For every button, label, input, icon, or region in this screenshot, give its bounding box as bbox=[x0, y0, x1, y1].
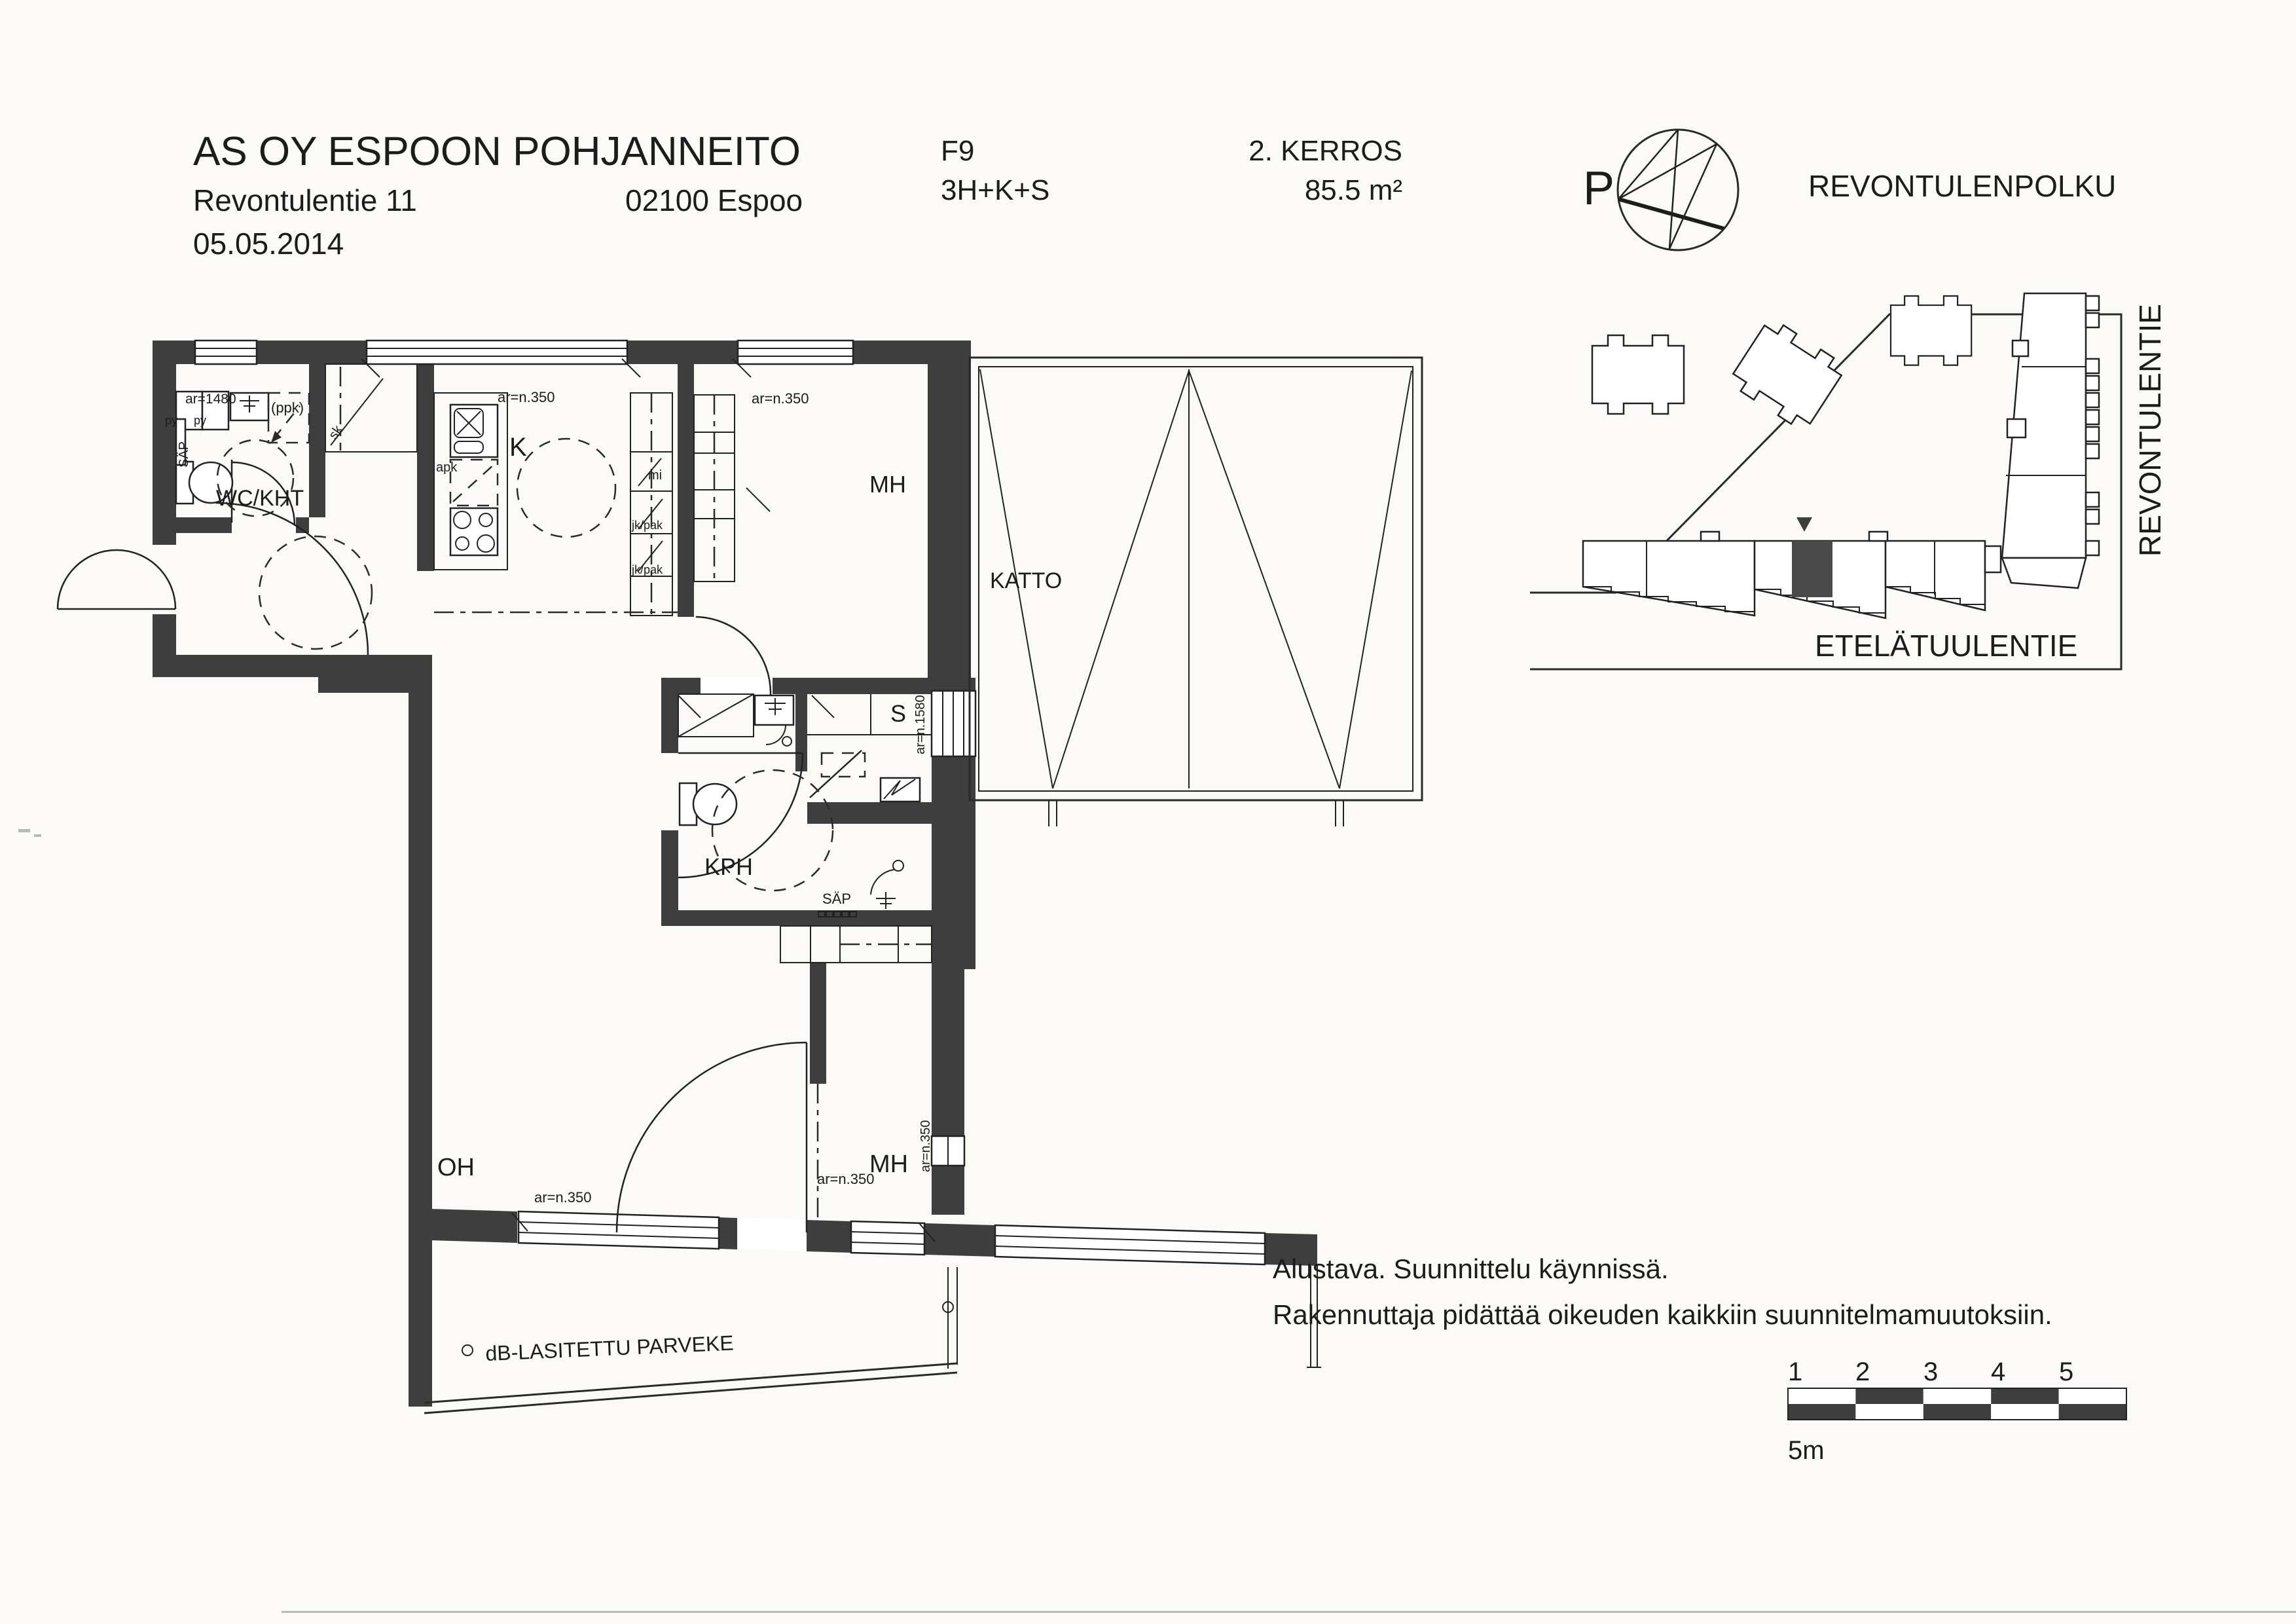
room-label-kitchen: K bbox=[509, 433, 527, 462]
balcony-post-left bbox=[462, 1345, 473, 1356]
scale-unit-label: 5m bbox=[1788, 1436, 1825, 1465]
scan-artifacts bbox=[18, 829, 2296, 1613]
annotation-jk-pak-2: jk/pak bbox=[631, 563, 663, 576]
kitchen-dishwasher-apk bbox=[450, 460, 498, 506]
window-wc bbox=[195, 341, 257, 364]
kitchen-counter bbox=[434, 393, 507, 570]
bedroom-top-wardrobes bbox=[694, 395, 735, 581]
kitchen-stove bbox=[450, 508, 498, 555]
room-label-sauna: S bbox=[890, 700, 906, 727]
note-line-2: Rakennuttaja pidättää oikeuden kaikkiin … bbox=[1273, 1299, 2052, 1330]
sauna-stove bbox=[822, 753, 865, 777]
room-label-living-room: OH bbox=[437, 1154, 475, 1181]
room-label-wc-kht: WC/KHT bbox=[216, 486, 304, 511]
annotation-mi: mi bbox=[648, 468, 662, 483]
apartment-type: 3H+K+S bbox=[941, 174, 1049, 206]
scale-tick-3: 3 bbox=[1923, 1357, 1938, 1386]
window-kitchen bbox=[367, 341, 627, 364]
site-highlighted-unit bbox=[1792, 541, 1832, 597]
room-label-bedroom-bottom: MH bbox=[869, 1151, 908, 1178]
annotation-jk-pak-1: jk/pak bbox=[631, 519, 663, 532]
entry-door bbox=[58, 550, 175, 609]
kitchen-turning-circle bbox=[517, 439, 615, 537]
drawing-canvas: AS OY ESPOON POHJANNEITO Revontulentie 1… bbox=[0, 0, 2296, 1624]
floor-plan: WC/KHT K MH KATTO S KPH OH MH dB-LASITET… bbox=[58, 341, 1422, 1413]
window-living-room bbox=[519, 1211, 719, 1249]
site-building-rotated bbox=[1728, 317, 1848, 433]
scale-bar: 1 2 3 4 5 5m bbox=[1788, 1357, 2126, 1465]
site-unit-marker-triangle bbox=[1796, 517, 1812, 532]
window-bedroom-bottom-east bbox=[932, 1136, 964, 1166]
scale-tick-2: 2 bbox=[1855, 1357, 1870, 1386]
bedroom-top-door bbox=[696, 617, 773, 695]
scale-tick-5: 5 bbox=[2059, 1357, 2073, 1386]
annotation-apk: apk bbox=[436, 460, 458, 475]
bedroom-bottom-closets bbox=[780, 926, 932, 963]
kitchen-tall-cabinets bbox=[630, 393, 672, 616]
annotation-sk: sk bbox=[326, 422, 346, 442]
annotation-ar-n1580: ar=n.1580 bbox=[913, 695, 928, 754]
bathroom-shower bbox=[871, 860, 903, 909]
note-line-1: Alustava. Suunnittelu käynnissä. bbox=[1273, 1253, 1669, 1284]
site-building-northwest bbox=[1592, 335, 1684, 414]
north-arrow: P bbox=[1583, 130, 1738, 250]
room-label-balcony: dB-LASITETTU PARVEKE bbox=[485, 1331, 735, 1365]
annotation-py-2: py bbox=[194, 414, 206, 427]
bathroom-laundry-unit bbox=[678, 694, 754, 737]
street-name-revontulenpolku: REVONTULENPOLKU bbox=[1808, 169, 2116, 203]
annotation-ar-n350-kitchen: ar=n.350 bbox=[498, 389, 555, 405]
street-name-revontulentie: REVONTULENTIE bbox=[2133, 304, 2167, 557]
floor-label: 2. KERROS bbox=[1248, 135, 1402, 167]
window-bedroom-bottom-south bbox=[851, 1221, 924, 1255]
annotation-ar-n350-east: ar=n.350 bbox=[919, 1120, 933, 1172]
window-bedroom-top bbox=[738, 341, 853, 364]
scale-bar-blocks bbox=[1788, 1388, 2126, 1420]
street-address: Revontulentie 11 bbox=[193, 183, 417, 217]
annotation-sap-wall: SÄP bbox=[177, 441, 191, 468]
room-label-bedroom-top: MH bbox=[869, 471, 906, 498]
bathroom-basin bbox=[755, 695, 793, 746]
apartment-id: F9 bbox=[941, 135, 974, 167]
kitchen-sink bbox=[450, 405, 498, 457]
wc-sink bbox=[230, 393, 268, 420]
annotation-ar-n350-living: ar=n.350 bbox=[534, 1189, 591, 1206]
area-label: 85.5 m² bbox=[1305, 174, 1402, 206]
housing-company-title: AS OY ESPOON POHJANNEITO bbox=[193, 129, 801, 174]
site-building-northeast bbox=[1891, 296, 1971, 365]
floor-plan-sheet: AS OY ESPOON POHJANNEITO Revontulentie 1… bbox=[0, 0, 2296, 1624]
title-block: AS OY ESPOON POHJANNEITO Revontulentie 1… bbox=[193, 129, 1402, 261]
annotation-sap-bathroom: SÄP bbox=[822, 891, 851, 907]
site-plan: REVONTULENPOLKU REVONTULENTIE ETELÄTUULE… bbox=[1530, 169, 2167, 669]
window-south-extension bbox=[995, 1225, 1265, 1264]
disclaimer-notes: Alustava. Suunnittelu käynnissä. Rakennu… bbox=[1273, 1253, 2052, 1330]
site-building-east-tall bbox=[2002, 293, 2099, 588]
postal-city: 02100 Espoo bbox=[625, 183, 803, 217]
room-label-roof: KATTO bbox=[990, 568, 1062, 593]
electrical-box bbox=[881, 778, 920, 802]
scale-tick-4: 4 bbox=[1991, 1357, 2005, 1386]
plan-date: 05.05.2014 bbox=[193, 227, 344, 261]
compass-north-label: P bbox=[1583, 162, 1614, 215]
annotation-ar-n350-bedroom-bottom: ar=n.350 bbox=[817, 1171, 874, 1187]
room-label-bathroom: KPH bbox=[704, 853, 753, 880]
scale-tick-1: 1 bbox=[1788, 1357, 1802, 1386]
street-name-etelatuulentie: ETELÄTUULENTIE bbox=[1815, 629, 2077, 663]
annotation-py-1: py bbox=[165, 414, 177, 427]
annotation-ar1480: ar=1480 bbox=[185, 392, 236, 407]
annotation-ppk: (ppk) bbox=[271, 399, 304, 416]
site-building-row-south bbox=[1583, 517, 2001, 618]
entry-inner-swing bbox=[216, 503, 368, 655]
annotation-ar-n350-bedroom-top: ar=n.350 bbox=[752, 390, 809, 407]
